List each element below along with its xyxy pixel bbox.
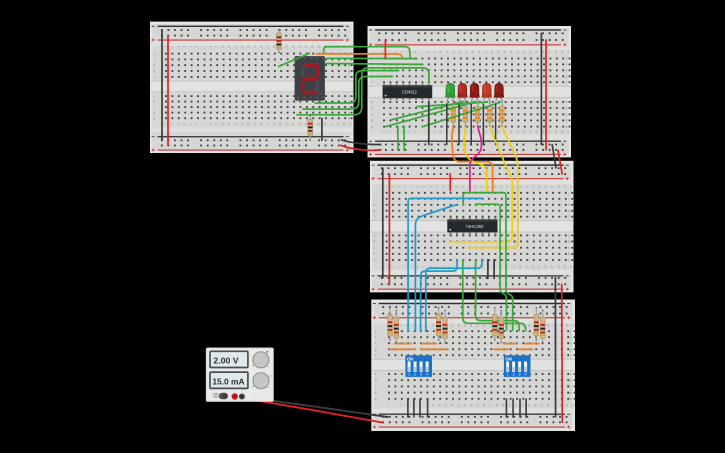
svg-text:22: 22 — [297, 45, 301, 48]
svg-text:22: 22 — [518, 265, 522, 268]
svg-text:f: f — [375, 353, 376, 357]
svg-text:c: c — [375, 385, 377, 389]
svg-text:b: b — [566, 119, 568, 123]
svg-text:ON: ON — [407, 356, 413, 361]
svg-text:24: 24 — [533, 403, 537, 406]
svg-text:14: 14 — [246, 45, 250, 48]
svg-text:4: 4 — [426, 373, 428, 377]
svg-text:c: c — [371, 113, 373, 117]
svg-text:g: g — [568, 209, 570, 213]
svg-text:29: 29 — [565, 323, 569, 326]
svg-text:24: 24 — [528, 130, 532, 133]
svg-text:74HC283: 74HC283 — [466, 224, 484, 229]
svg-text:27: 27 — [550, 265, 554, 268]
svg-text:c: c — [373, 246, 375, 250]
svg-text:26: 26 — [546, 323, 550, 326]
svg-text:22: 22 — [515, 50, 519, 53]
svg-text:g: g — [153, 69, 155, 73]
svg-text:0.00: 0.00 — [253, 394, 262, 399]
svg-text:a: a — [371, 125, 373, 129]
svg-text:h: h — [373, 203, 375, 207]
svg-text:11: 11 — [445, 50, 449, 53]
svg-text:19: 19 — [499, 185, 503, 188]
svg-text:24: 24 — [531, 185, 535, 188]
svg-text:10: 10 — [444, 403, 448, 406]
svg-text:22: 22 — [515, 130, 519, 133]
svg-text:j: j — [153, 52, 155, 56]
svg-text:h: h — [568, 203, 570, 207]
svg-text:25: 25 — [537, 185, 541, 188]
svg-text:c: c — [153, 105, 155, 109]
svg-text:11: 11 — [450, 324, 454, 327]
svg-text:16: 16 — [259, 45, 263, 48]
svg-text:12: 12 — [456, 403, 460, 406]
svg-text:f: f — [566, 80, 567, 84]
svg-text:29: 29 — [560, 130, 564, 133]
svg-text:25: 25 — [535, 50, 539, 53]
svg-text:c: c — [568, 246, 570, 250]
svg-text:f: f — [570, 353, 571, 357]
svg-text:4: 4 — [525, 373, 527, 377]
svg-text:30: 30 — [572, 323, 576, 326]
svg-text:11: 11 — [227, 45, 231, 48]
svg-text:f: f — [349, 75, 350, 79]
svg-text:e: e — [568, 234, 570, 238]
svg-text:a: a — [569, 397, 571, 401]
svg-text:26: 26 — [544, 265, 548, 268]
svg-text:25: 25 — [537, 265, 541, 268]
svg-text:a: a — [348, 116, 350, 120]
svg-text:2: 2 — [414, 373, 416, 377]
svg-text:30: 30 — [572, 403, 576, 406]
svg-text:21: 21 — [509, 130, 513, 133]
svg-text:21: 21 — [509, 50, 513, 53]
svg-text:15: 15 — [253, 45, 257, 48]
svg-text:20: 20 — [285, 45, 289, 48]
svg-text:f: f — [371, 80, 372, 84]
svg-text:3: 3 — [420, 373, 422, 377]
svg-text:29: 29 — [565, 403, 569, 406]
svg-text:30: 30 — [567, 130, 571, 133]
svg-text:12: 12 — [454, 185, 458, 188]
svg-text:25: 25 — [317, 45, 321, 48]
svg-text:20: 20 — [285, 122, 289, 125]
svg-text:23: 23 — [527, 403, 531, 406]
svg-text:j: j — [373, 191, 375, 195]
svg-text:16: 16 — [477, 50, 481, 53]
svg-text:20: 20 — [503, 50, 507, 53]
svg-text:23: 23 — [522, 130, 526, 133]
svg-text:20: 20 — [508, 403, 512, 406]
svg-text:b: b — [373, 252, 375, 256]
svg-text:a: a — [153, 116, 155, 120]
svg-text:c: c — [566, 113, 568, 117]
svg-text:13: 13 — [458, 50, 462, 53]
svg-text:20: 20 — [505, 185, 509, 188]
svg-text:g: g — [566, 75, 568, 79]
svg-text:23: 23 — [304, 45, 308, 48]
svg-text:e: e — [348, 94, 350, 98]
svg-text:14: 14 — [246, 122, 250, 125]
svg-text:c: c — [570, 385, 572, 389]
svg-text:21: 21 — [291, 122, 295, 125]
svg-text:e: e — [569, 372, 571, 376]
svg-text:21: 21 — [514, 403, 518, 406]
svg-text:e: e — [375, 372, 377, 376]
svg-text:10: 10 — [441, 185, 445, 188]
svg-text:29: 29 — [342, 122, 346, 125]
svg-text:18: 18 — [490, 50, 494, 53]
svg-text:d: d — [568, 240, 570, 244]
svg-text:h: h — [566, 69, 568, 73]
svg-text:23: 23 — [524, 265, 528, 268]
svg-text:26: 26 — [544, 185, 548, 188]
svg-text:f: f — [374, 215, 375, 219]
svg-text:27: 27 — [329, 122, 333, 125]
svg-text:28: 28 — [336, 122, 340, 125]
svg-text:b: b — [153, 111, 155, 115]
svg-text:a: a — [373, 258, 375, 262]
svg-text:e: e — [373, 234, 375, 238]
svg-text:26: 26 — [323, 122, 327, 125]
svg-text:16: 16 — [259, 122, 263, 125]
svg-text:22: 22 — [520, 403, 524, 406]
svg-text:17: 17 — [265, 122, 269, 125]
svg-text:14: 14 — [469, 403, 473, 406]
svg-text:d: d — [153, 100, 155, 104]
svg-text:e: e — [371, 100, 373, 104]
svg-text:1: 1 — [507, 373, 509, 377]
svg-text:15: 15 — [473, 185, 477, 188]
svg-text:2: 2 — [513, 373, 515, 377]
svg-text:11: 11 — [450, 403, 454, 406]
svg-text:12: 12 — [233, 122, 237, 125]
svg-text:h: h — [153, 63, 155, 67]
svg-text:10: 10 — [439, 50, 443, 53]
svg-text:26: 26 — [546, 403, 550, 406]
svg-text:18: 18 — [272, 122, 276, 125]
svg-text:24: 24 — [310, 45, 314, 48]
svg-text:30: 30 — [569, 265, 573, 268]
svg-text:15: 15 — [476, 403, 480, 406]
svg-text:18: 18 — [272, 45, 276, 48]
svg-text:b: b — [375, 391, 377, 395]
svg-text:g: g — [348, 69, 350, 73]
svg-text:d: d — [373, 240, 375, 244]
svg-text:12: 12 — [456, 323, 460, 326]
svg-text:g: g — [569, 347, 571, 351]
svg-text:10: 10 — [221, 45, 225, 48]
svg-text:e: e — [153, 94, 155, 98]
svg-text:28: 28 — [554, 130, 558, 133]
svg-text:25: 25 — [535, 130, 539, 133]
svg-text:d: d — [566, 106, 568, 110]
svg-text:19: 19 — [501, 403, 505, 406]
svg-text:30: 30 — [567, 50, 571, 53]
svg-text:g: g — [373, 209, 375, 213]
svg-text:ON: ON — [269, 374, 273, 378]
svg-text:24: 24 — [528, 50, 532, 53]
svg-text:j: j — [565, 57, 567, 61]
svg-text:h: h — [375, 341, 377, 345]
svg-text:13: 13 — [460, 185, 464, 188]
svg-text:18: 18 — [495, 403, 499, 406]
svg-text:d: d — [371, 106, 373, 110]
svg-text:e: e — [566, 100, 568, 104]
svg-text:g: g — [375, 347, 377, 351]
svg-text:14: 14 — [464, 50, 468, 53]
svg-text:d: d — [569, 378, 571, 382]
svg-text:f: f — [569, 215, 570, 219]
svg-text:27: 27 — [547, 50, 551, 53]
svg-text:25: 25 — [317, 122, 321, 125]
svg-text:CD4511: CD4511 — [402, 90, 418, 95]
svg-text:16: 16 — [480, 185, 484, 188]
svg-text:j: j — [568, 191, 570, 195]
svg-text:30: 30 — [349, 122, 353, 125]
svg-text:24: 24 — [531, 265, 535, 268]
svg-text:b: b — [371, 119, 373, 123]
svg-text:23: 23 — [527, 323, 531, 326]
svg-text:17: 17 — [265, 45, 269, 48]
svg-text:j: j — [569, 329, 571, 333]
svg-text:16: 16 — [482, 403, 486, 406]
svg-text:15: 15 — [253, 122, 257, 125]
svg-text:h: h — [569, 341, 571, 345]
svg-text:15.0 mA: 15.0 mA — [212, 376, 244, 386]
svg-text:15: 15 — [471, 50, 475, 53]
svg-text:17: 17 — [488, 403, 492, 406]
svg-text:j: j — [374, 329, 376, 333]
svg-text:23: 23 — [522, 50, 526, 53]
svg-text:17: 17 — [483, 50, 487, 53]
svg-text:12: 12 — [451, 50, 455, 53]
svg-text:13: 13 — [240, 122, 244, 125]
svg-text:28: 28 — [554, 50, 558, 53]
svg-text:a: a — [375, 397, 377, 401]
svg-text:23: 23 — [524, 185, 528, 188]
svg-text:23: 23 — [304, 122, 308, 125]
svg-text:b: b — [569, 391, 571, 395]
svg-text:27: 27 — [547, 130, 551, 133]
svg-text:13: 13 — [240, 45, 244, 48]
svg-text:13: 13 — [463, 403, 467, 406]
svg-text:21: 21 — [512, 265, 516, 268]
svg-text:22: 22 — [297, 122, 301, 125]
svg-text:11: 11 — [227, 122, 231, 125]
svg-text:10: 10 — [221, 122, 225, 125]
svg-text:29: 29 — [563, 185, 567, 188]
svg-text:f: f — [154, 75, 155, 79]
svg-text:28: 28 — [556, 265, 560, 268]
svg-text:a: a — [568, 258, 570, 262]
svg-text:1: 1 — [408, 373, 410, 377]
svg-text:2.00 V: 2.00 V — [213, 356, 238, 366]
svg-text:ON: ON — [506, 356, 512, 361]
svg-text:10: 10 — [439, 130, 443, 133]
svg-text:19: 19 — [278, 122, 282, 125]
svg-text:29: 29 — [560, 50, 564, 53]
svg-text:29: 29 — [563, 265, 567, 268]
svg-text:27: 27 — [550, 185, 554, 188]
svg-text:21: 21 — [291, 45, 295, 48]
svg-text:30: 30 — [569, 185, 573, 188]
svg-text:a: a — [566, 125, 568, 129]
svg-text:19: 19 — [496, 50, 500, 53]
svg-text:25: 25 — [540, 403, 544, 406]
svg-text:12: 12 — [233, 45, 237, 48]
svg-text:b: b — [568, 252, 570, 256]
svg-text:d: d — [375, 378, 377, 382]
svg-text:28: 28 — [556, 185, 560, 188]
svg-text:3: 3 — [519, 373, 521, 377]
svg-text:19: 19 — [496, 130, 500, 133]
